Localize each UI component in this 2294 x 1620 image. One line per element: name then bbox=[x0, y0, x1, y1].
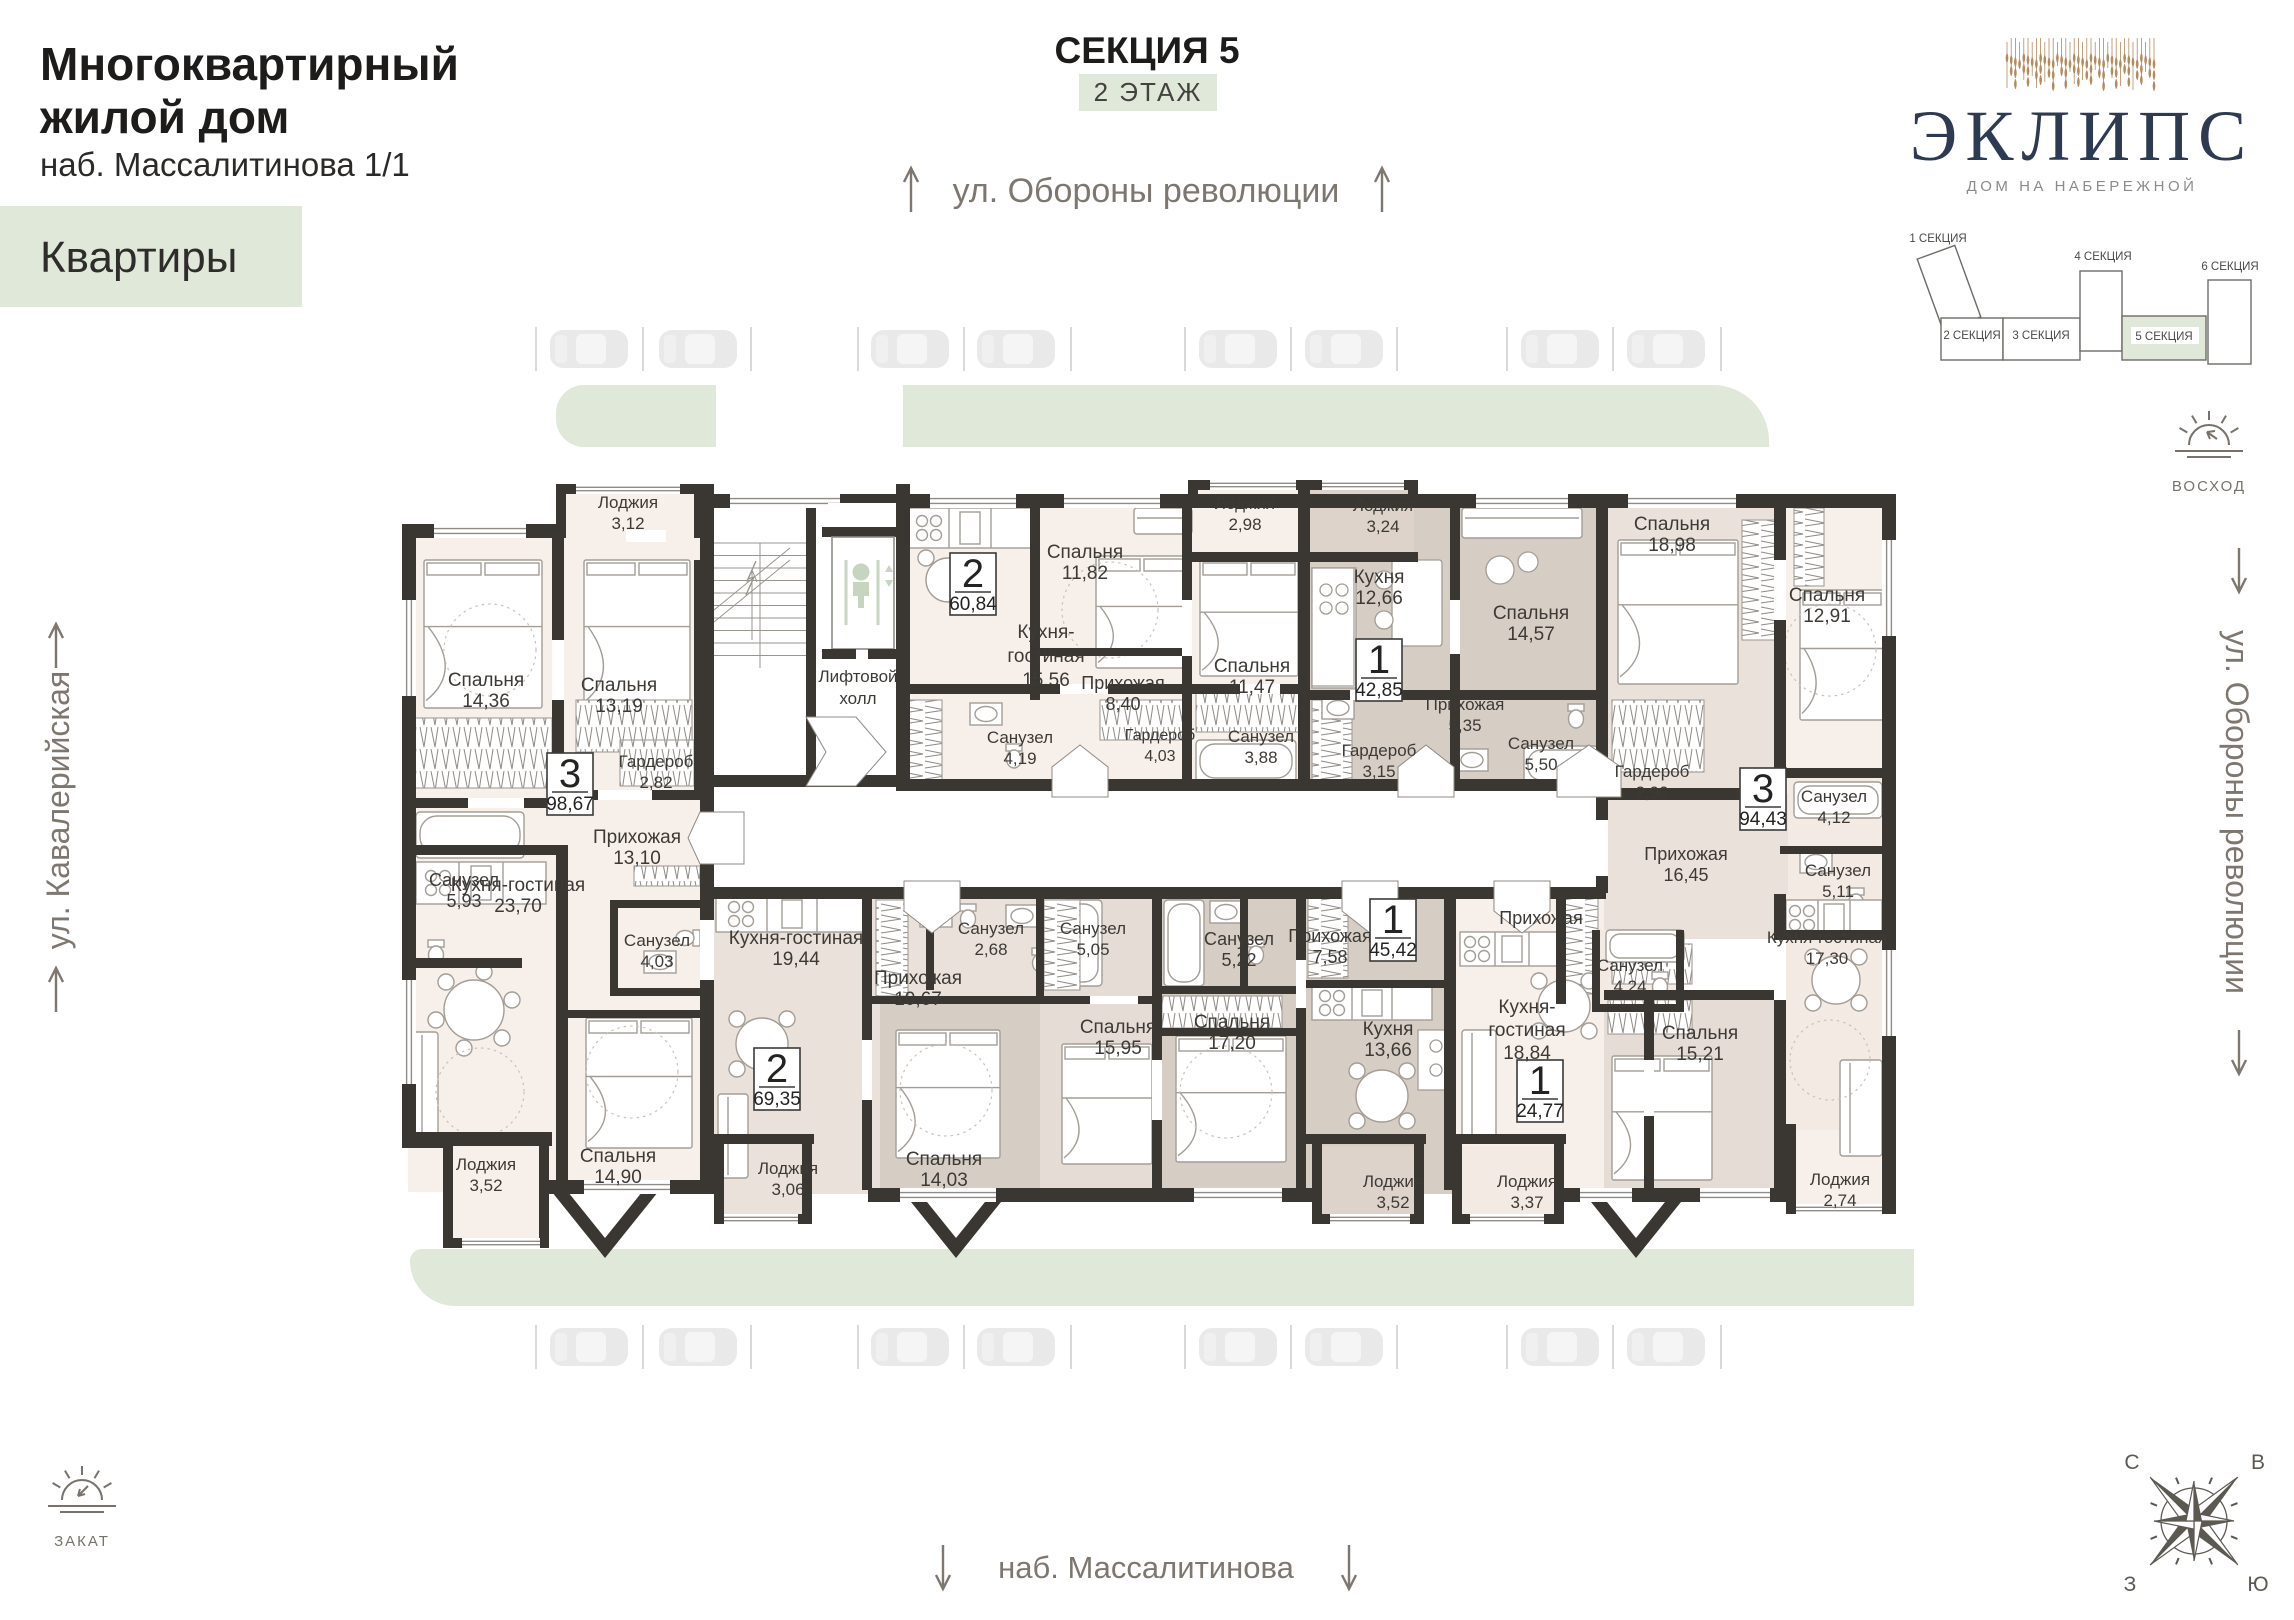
svg-text:Санузел: Санузел bbox=[958, 919, 1024, 938]
svg-text:13,19: 13,19 bbox=[595, 696, 643, 717]
svg-text:7,58: 7,58 bbox=[1312, 947, 1347, 967]
svg-text:Квартиры: Квартиры bbox=[40, 233, 237, 282]
svg-text:Спальня: Спальня bbox=[1080, 1017, 1156, 1038]
svg-text:Спальня: Спальня bbox=[1662, 1023, 1738, 1044]
svg-text:С: С bbox=[2124, 1451, 2139, 1474]
svg-text:4,03: 4,03 bbox=[1144, 748, 1175, 765]
svg-text:4,03: 4,03 bbox=[640, 952, 673, 971]
svg-text:Спальня: Спальня bbox=[581, 675, 657, 696]
svg-text:2 СЕКЦИЯ: 2 СЕКЦИЯ bbox=[1943, 330, 2000, 342]
svg-text:14,57: 14,57 bbox=[1507, 624, 1555, 645]
svg-text:60,84: 60,84 bbox=[949, 594, 997, 615]
svg-text:4,12: 4,12 bbox=[1817, 808, 1850, 827]
svg-text:Кухня: Кухня bbox=[1354, 567, 1405, 588]
svg-text:Санузел: Санузел bbox=[987, 728, 1053, 747]
svg-text:Прихожая: Прихожая bbox=[874, 968, 962, 989]
svg-text:Кухня-гостиная: Кухня-гостиная bbox=[451, 875, 585, 896]
svg-text:Лифтовой: Лифтовой bbox=[818, 667, 897, 686]
svg-text:Санузел: Санузел bbox=[1801, 787, 1867, 806]
svg-text:ВОСХОД: ВОСХОД bbox=[2172, 478, 2246, 495]
svg-text:Спальня: Спальня bbox=[448, 670, 524, 691]
svg-text:8,40: 8,40 bbox=[1105, 694, 1140, 714]
svg-text:14,36: 14,36 bbox=[462, 691, 510, 712]
svg-text:2,68: 2,68 bbox=[974, 940, 1007, 959]
svg-text:ул. Кавалерийская: ул. Кавалерийская bbox=[40, 671, 76, 949]
svg-text:11,47: 11,47 bbox=[1229, 677, 1275, 698]
svg-text:13,10: 13,10 bbox=[613, 848, 661, 869]
svg-text:Прихожая: Прихожая bbox=[593, 827, 681, 848]
svg-text:1 СЕКЦИЯ: 1 СЕКЦИЯ bbox=[1909, 233, 1966, 245]
svg-text:2,74: 2,74 bbox=[1823, 1191, 1856, 1210]
svg-text:15,95: 15,95 bbox=[1094, 1038, 1142, 1059]
svg-text:5,22: 5,22 bbox=[1221, 950, 1256, 970]
svg-text:жилой дом: жилой дом bbox=[39, 91, 289, 143]
svg-text:11,82: 11,82 bbox=[1062, 563, 1108, 584]
svg-text:Лоджия: Лоджия bbox=[758, 1159, 818, 1178]
svg-text:Лоджия: Лоджия bbox=[1363, 1172, 1423, 1191]
svg-text:Санузел: Санузел bbox=[1508, 734, 1574, 753]
svg-text:СЕКЦИЯ 5: СЕКЦИЯ 5 bbox=[1054, 30, 1239, 71]
svg-text:3,12: 3,12 bbox=[611, 514, 644, 533]
svg-text:2,98: 2,98 bbox=[1228, 515, 1261, 534]
svg-text:16,45: 16,45 bbox=[1663, 865, 1708, 885]
svg-text:3 СЕКЦИЯ: 3 СЕКЦИЯ bbox=[2012, 330, 2069, 342]
svg-text:Санузел: Санузел bbox=[1228, 727, 1294, 746]
svg-text:наб. Массалитинова 1/1: наб. Массалитинова 1/1 bbox=[40, 146, 410, 183]
svg-text:гостиная: гостиная bbox=[1007, 646, 1084, 667]
svg-text:Спальня: Спальня bbox=[906, 1149, 982, 1170]
svg-text:Спальня: Спальня bbox=[1634, 514, 1710, 535]
svg-text:Кухня-гостиная: Кухня-гостиная bbox=[1767, 928, 1887, 947]
svg-text:Санузел: Санузел bbox=[1204, 929, 1274, 949]
svg-text:19,44: 19,44 bbox=[772, 949, 820, 970]
svg-text:Гардероб: Гардероб bbox=[1615, 762, 1690, 781]
svg-text:12,91: 12,91 bbox=[1803, 606, 1851, 627]
svg-text:Санузел: Санузел bbox=[1805, 861, 1871, 880]
svg-text:Спальня: Спальня bbox=[1194, 1012, 1270, 1033]
svg-text:3,88: 3,88 bbox=[1244, 748, 1277, 767]
svg-text:1: 1 bbox=[1382, 898, 1404, 942]
svg-text:Лоджия: Лоджия bbox=[1497, 1172, 1557, 1191]
svg-text:18,98: 18,98 bbox=[1648, 535, 1696, 556]
svg-text:12,66: 12,66 bbox=[1355, 588, 1403, 609]
svg-text:Спальня: Спальня bbox=[1047, 542, 1123, 563]
svg-text:Прихожая: Прихожая bbox=[1644, 844, 1727, 864]
svg-text:Прихожая: Прихожая bbox=[1081, 673, 1164, 693]
svg-text:Санузел: Санузел bbox=[1597, 956, 1663, 975]
svg-text:2 ЭТАЖ: 2 ЭТАЖ bbox=[1094, 77, 1203, 107]
svg-text:Кухня-: Кухня- bbox=[1498, 997, 1555, 1018]
svg-text:Спальня: Спальня bbox=[1214, 656, 1290, 677]
svg-text:13,66: 13,66 bbox=[1364, 1040, 1412, 1061]
svg-text:5,35: 5,35 bbox=[1448, 716, 1481, 735]
svg-text:гостиная: гостиная bbox=[1488, 1020, 1565, 1041]
svg-text:69,35: 69,35 bbox=[753, 1089, 801, 1110]
svg-text:Санузел: Санузел bbox=[1060, 919, 1126, 938]
svg-text:10,67: 10,67 bbox=[894, 989, 942, 1010]
svg-text:4,19: 4,19 bbox=[1003, 749, 1036, 768]
svg-text:42,85: 42,85 bbox=[1355, 680, 1403, 701]
svg-text:Лоджия: Лоджия bbox=[1810, 1170, 1870, 1189]
svg-text:3,24: 3,24 bbox=[1366, 517, 1399, 536]
svg-text:94,43: 94,43 bbox=[1739, 809, 1787, 830]
svg-text:2: 2 bbox=[962, 552, 984, 596]
svg-text:18,84: 18,84 bbox=[1503, 1043, 1551, 1064]
svg-text:5,50: 5,50 bbox=[1524, 755, 1557, 774]
svg-text:17,30: 17,30 bbox=[1806, 949, 1849, 968]
svg-text:Кухня-: Кухня- bbox=[1017, 622, 1074, 643]
svg-text:4,24: 4,24 bbox=[1613, 977, 1646, 996]
svg-text:3: 3 bbox=[1752, 767, 1774, 811]
svg-text:Санузел: Санузел bbox=[624, 931, 690, 950]
svg-text:3,52: 3,52 bbox=[469, 1176, 502, 1195]
svg-text:Спальня: Спальня bbox=[1493, 603, 1569, 624]
svg-text:15,21: 15,21 bbox=[1676, 1044, 1724, 1065]
svg-text:17,20: 17,20 bbox=[1208, 1033, 1256, 1054]
svg-text:5,05: 5,05 bbox=[1076, 940, 1109, 959]
svg-text:Спальня: Спальня bbox=[580, 1146, 656, 1167]
svg-text:Спальня: Спальня bbox=[1789, 585, 1865, 606]
svg-text:4 СЕКЦИЯ: 4 СЕКЦИЯ bbox=[2074, 251, 2131, 263]
svg-text:6 СЕКЦИЯ: 6 СЕКЦИЯ bbox=[2201, 261, 2258, 273]
svg-text:ул. Обороны революции: ул. Обороны революции bbox=[953, 172, 1340, 210]
svg-text:ДОМ НА НАБЕРЕЖНОЙ: ДОМ НА НАБЕРЕЖНОЙ bbox=[1967, 177, 2198, 195]
svg-text:Многоквартирный: Многоквартирный bbox=[40, 38, 459, 90]
svg-text:Прихожая: Прихожая bbox=[1426, 695, 1505, 714]
svg-text:5 СЕКЦИЯ: 5 СЕКЦИЯ bbox=[2135, 331, 2192, 343]
svg-text:Лоджия: Лоджия bbox=[1215, 494, 1275, 513]
svg-text:Ю: Ю bbox=[2247, 1573, 2268, 1596]
svg-text:Лоджия: Лоджия bbox=[1353, 496, 1413, 515]
svg-text:ЗАКАТ: ЗАКАТ bbox=[54, 1533, 110, 1550]
svg-text:Гардероб: Гардероб bbox=[1125, 727, 1195, 744]
svg-text:наб. Массалитинова: наб. Массалитинова bbox=[998, 1550, 1294, 1585]
svg-text:45,42: 45,42 bbox=[1369, 940, 1417, 961]
svg-text:З: З bbox=[2124, 1573, 2137, 1596]
svg-text:Прихожая: Прихожая bbox=[1288, 926, 1371, 946]
svg-text:В: В bbox=[2251, 1451, 2265, 1474]
svg-text:2,90: 2,90 bbox=[1635, 783, 1668, 802]
svg-text:3,06: 3,06 bbox=[771, 1180, 804, 1199]
svg-text:5,11: 5,11 bbox=[1822, 882, 1854, 901]
svg-text:3,52: 3,52 bbox=[1376, 1193, 1409, 1212]
svg-text:1: 1 bbox=[1529, 1059, 1551, 1103]
svg-text:Кухня-гостиная: Кухня-гостиная bbox=[729, 928, 863, 949]
svg-text:3: 3 bbox=[559, 752, 581, 796]
svg-text:ЭКЛИПС: ЭКЛИПС bbox=[1910, 96, 2254, 176]
svg-text:ул. Обороны революции: ул. Обороны революции bbox=[2219, 630, 2255, 994]
svg-text:Лоджия: Лоджия bbox=[456, 1155, 516, 1174]
svg-text:Гардероб: Гардероб bbox=[619, 752, 694, 771]
svg-text:Кухня: Кухня bbox=[1363, 1019, 1414, 1040]
svg-text:15,56: 15,56 bbox=[1022, 670, 1070, 691]
svg-text:14,90: 14,90 bbox=[594, 1167, 642, 1188]
svg-text:98,67: 98,67 bbox=[546, 794, 594, 815]
svg-text:холл: холл bbox=[839, 689, 876, 708]
svg-text:23,70: 23,70 bbox=[494, 896, 542, 917]
svg-text:2,82: 2,82 bbox=[639, 773, 672, 792]
svg-text:Гардероб: Гардероб bbox=[1342, 741, 1417, 760]
svg-text:Прихожая: Прихожая bbox=[1499, 908, 1582, 928]
svg-text:24,77: 24,77 bbox=[1516, 1101, 1564, 1122]
svg-text:Лоджия: Лоджия bbox=[598, 493, 658, 512]
svg-text:2: 2 bbox=[766, 1047, 788, 1091]
svg-text:3,15: 3,15 bbox=[1362, 762, 1395, 781]
svg-text:1: 1 bbox=[1368, 638, 1390, 682]
svg-text:14,03: 14,03 bbox=[920, 1170, 968, 1191]
svg-text:3,37: 3,37 bbox=[1510, 1193, 1543, 1212]
